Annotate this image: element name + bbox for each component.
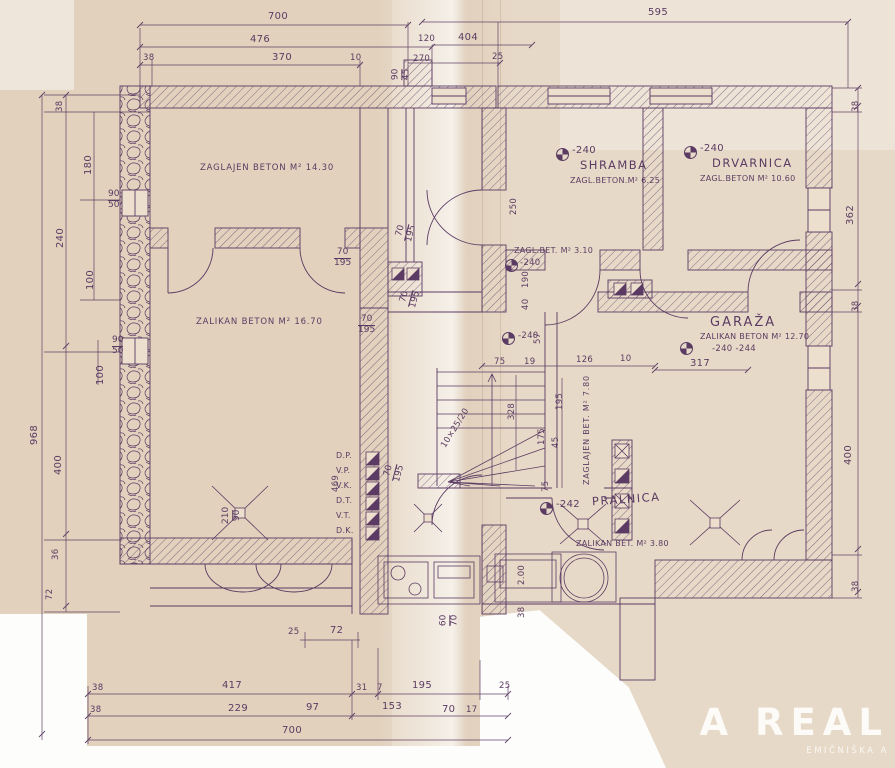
dim-label: 328 (508, 403, 517, 420)
dim-label: 250 (510, 198, 519, 215)
dim-label: 476 (250, 35, 270, 45)
level-marker-icon (684, 146, 697, 159)
dim-label: 38 (143, 54, 154, 63)
dim-label: 7 (377, 684, 383, 693)
dim-label: 40 (522, 299, 531, 310)
dim-label: 38 (90, 706, 101, 715)
dim-label: 25 (492, 53, 503, 62)
level-marker-icon (540, 502, 553, 515)
dim-label: 229 (228, 704, 248, 714)
level-label: -240 (572, 146, 596, 156)
level-marker-icon (680, 342, 693, 355)
dim-label: 19 (524, 358, 535, 367)
dim-label: 175 (538, 428, 547, 445)
room-area-label: ZAGLAJEN BETON M² 14.30 (200, 164, 334, 173)
floorplan-linework (0, 0, 895, 768)
dim-label: 75 (542, 481, 551, 492)
room-area-label: ZAGLAJEN BET. M² 7.80 (583, 375, 591, 485)
room-area-label: ZALIKAN BETON M² 16.70 (196, 318, 323, 327)
dim-label: 25 (288, 628, 299, 637)
dim-label: 17 (466, 706, 477, 715)
door-size-label: 70195 (358, 315, 375, 336)
dim-label: 10 (350, 54, 361, 63)
dim-label: 968 (30, 425, 40, 445)
level-label: -240 (520, 259, 541, 268)
dim-label: 362 (846, 205, 856, 225)
room-area-label: ZAGL.BETON M² 10.60 (700, 175, 796, 183)
dim-label: 75 (494, 358, 505, 367)
window-size-label: 9045 (391, 69, 412, 80)
dim-label: 120 (418, 35, 435, 44)
dim-label: 31 (356, 684, 367, 693)
dim-label: 700 (282, 726, 302, 736)
dim-label: 38 (852, 101, 861, 112)
dim-label: 240 (56, 228, 66, 248)
dim-label: 97 (306, 703, 319, 713)
dim-label: 38 (92, 684, 103, 693)
dim-label: 38 (56, 101, 65, 112)
room-area-label: ZAGL.BET. M² 3.10 (514, 247, 593, 255)
shaft-label: D.P. (336, 452, 352, 460)
dim-label: 700 (268, 12, 288, 22)
watermark: A REAL EMIČNIŠKA A (700, 701, 890, 756)
dim-label: 38 (518, 607, 527, 618)
watermark-title: A REAL (700, 701, 890, 744)
window-size-label: 21090 (222, 507, 243, 524)
dim-label: 10 (620, 355, 631, 364)
dim-label: 57 (534, 333, 543, 344)
level-marker-icon (505, 259, 518, 272)
shaft-label: D.T. (336, 497, 352, 505)
level-label: -240 (700, 144, 724, 154)
room-area-label: ZALIKAN BETON M² 12.70 (700, 333, 809, 341)
level-label: -242 (556, 500, 580, 510)
dim-label: 195 (412, 681, 432, 691)
level-marker-icon (502, 332, 515, 345)
room-name-shramba: SHRAMBA (580, 160, 648, 172)
dim-label: 100 (86, 270, 96, 290)
dimension-ticks (39, 19, 861, 743)
dim-label: 70 (442, 705, 455, 715)
window-size-label: 9050 (112, 336, 123, 357)
window-size-label: 9050 (108, 190, 119, 211)
level-marker-icon (556, 148, 569, 161)
dim-label: 400 (844, 445, 854, 465)
shaft-label: V.T. (336, 512, 351, 520)
dimension-lines (39, 19, 862, 744)
dim-label: 72 (330, 626, 343, 636)
dim-label: 38 (852, 301, 861, 312)
dim-label: 45 (552, 437, 561, 448)
level-label: -240 -244 (712, 345, 756, 354)
room-area-label: ZALIKAN BET. M² 3.80 (576, 540, 669, 548)
dim-label: 100 (96, 365, 106, 385)
dim-label: 317 (690, 359, 710, 369)
dim-label: 400 (54, 455, 64, 475)
shaft-label: V.K. (336, 482, 352, 490)
dim-label: 2.00 (518, 565, 527, 585)
room-name-drvarnica: DRVARNICA (712, 158, 793, 170)
dim-label: 195 (556, 393, 565, 410)
room-name-garaza: GARAŽA (710, 316, 776, 329)
room-area-label: ZAGL.BETON.M² 6.25 (570, 177, 660, 185)
dim-label: 153 (382, 702, 402, 712)
shaft-label: V.P. (336, 467, 350, 475)
dim-label: 180 (84, 155, 94, 175)
dim-label: 370 (272, 53, 292, 63)
dim-label: 417 (222, 681, 242, 691)
blueprint-scan: 700 595 476 120 404 38 370 10 270 25 904… (0, 0, 895, 768)
dim-label: 595 (648, 8, 668, 18)
door-size-label: 70195 (334, 248, 351, 269)
dim-label: 72 (46, 589, 55, 600)
dim-label: 126 (576, 356, 593, 365)
dim-label: 36 (52, 549, 61, 560)
dim-label: 25 (499, 682, 510, 691)
dim-label: 38 (852, 581, 861, 592)
dim-label: 190 (522, 271, 531, 288)
watermark-subtitle: EMIČNIŠKA A (700, 746, 890, 756)
shaft-label: D.K. (336, 527, 354, 535)
window-size-label: 6070 (439, 615, 460, 626)
dim-label: 404 (458, 33, 478, 43)
dim-label: 270 (413, 55, 430, 64)
